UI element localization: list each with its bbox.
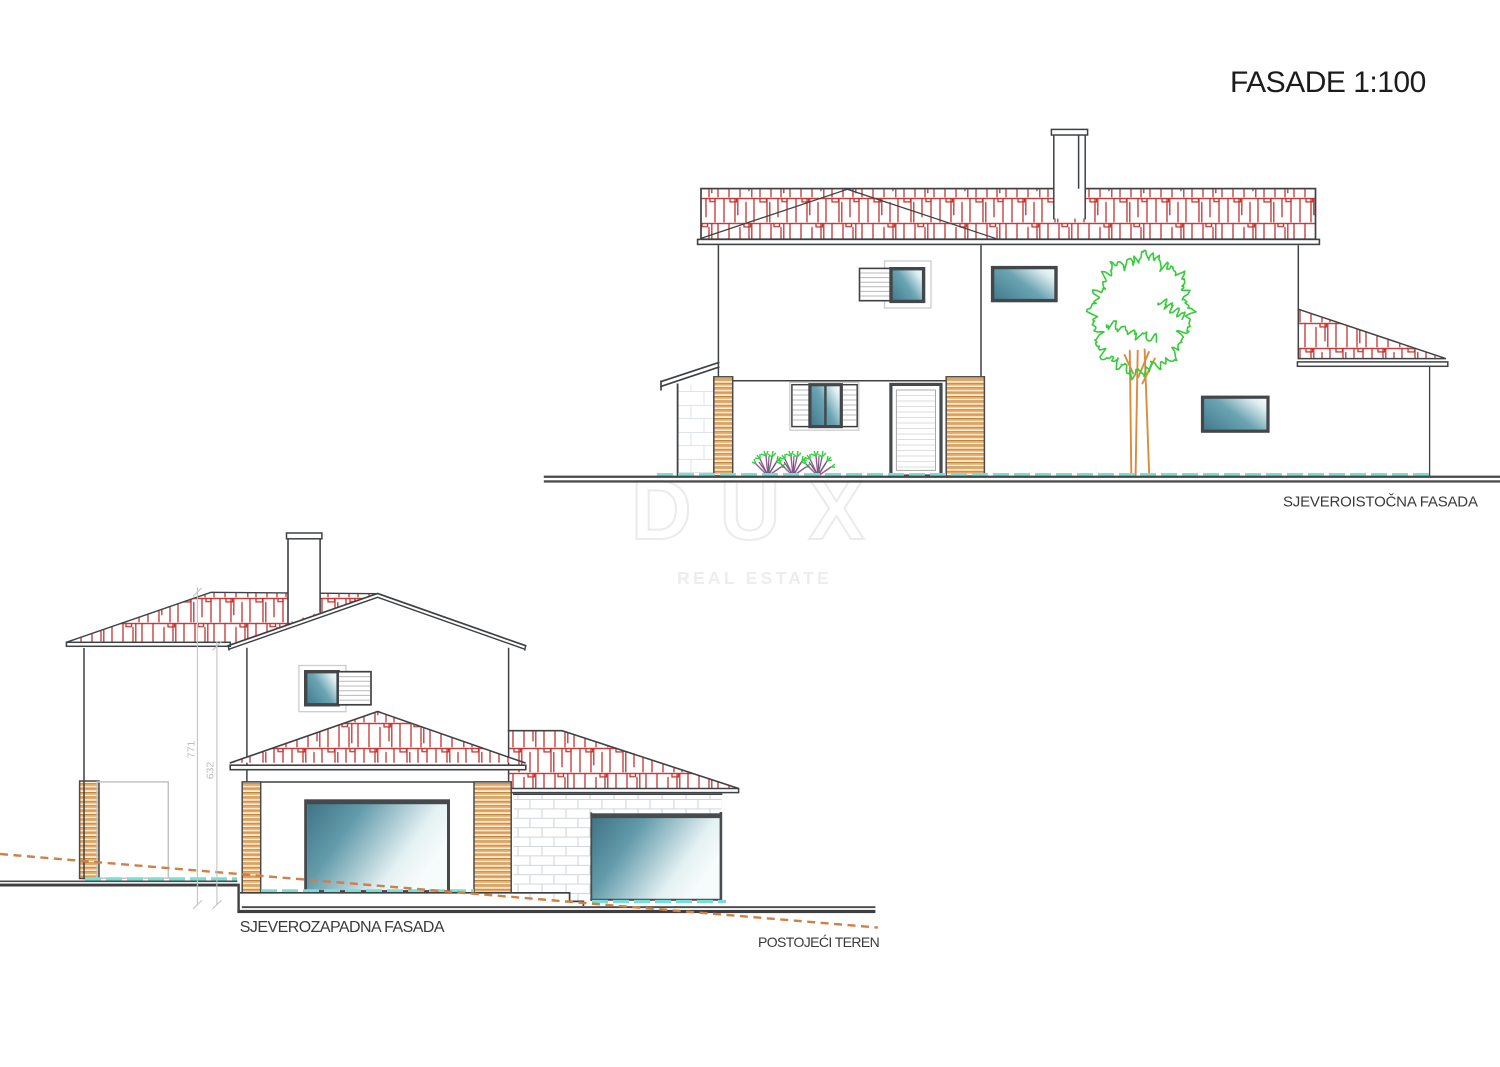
svg-text:632: 632: [205, 762, 217, 780]
svg-text:771: 771: [186, 741, 198, 759]
svg-text:SJEVEROISTOČNA FASADA: SJEVEROISTOČNA FASADA: [1283, 494, 1478, 511]
svg-text:SJEVEROZAPADNA FASADA: SJEVEROZAPADNA FASADA: [240, 919, 445, 936]
svg-text:REAL ESTATE: REAL ESTATE: [677, 568, 832, 588]
svg-text:POSTOJEĆI TEREN: POSTOJEĆI TEREN: [758, 934, 879, 950]
svg-text:FASADE 1:100: FASADE 1:100: [1230, 66, 1426, 99]
